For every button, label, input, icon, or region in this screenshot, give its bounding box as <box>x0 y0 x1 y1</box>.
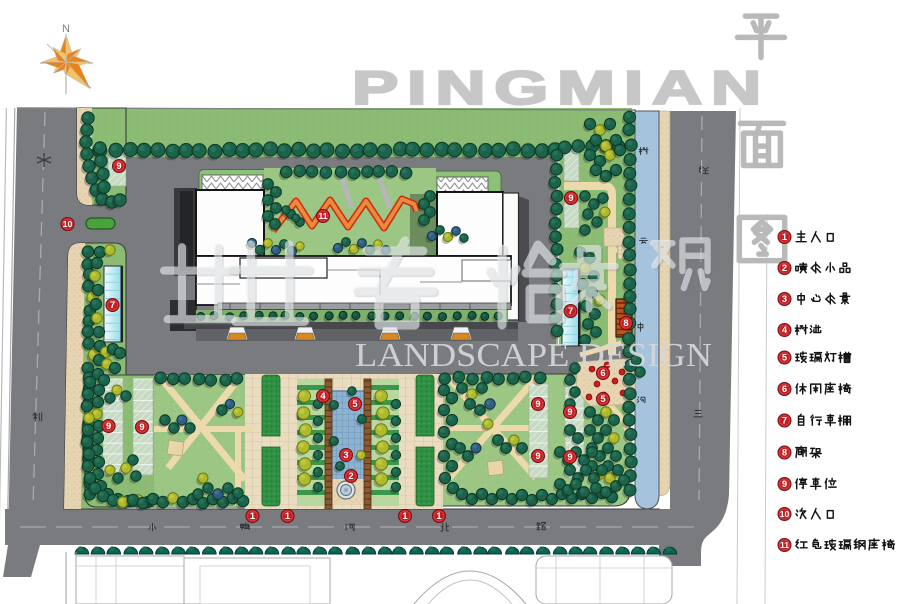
svg-text:9: 9 <box>567 451 572 462</box>
svg-text:11: 11 <box>780 540 789 550</box>
svg-text:7: 7 <box>568 305 573 316</box>
svg-text:2: 2 <box>348 470 353 481</box>
svg-text:5: 5 <box>600 393 605 404</box>
svg-text:9: 9 <box>568 192 573 203</box>
svg-text:4: 4 <box>782 324 788 335</box>
svg-text:LANDSCAPE DESIGN: LANDSCAPE DESIGN <box>355 337 712 374</box>
svg-text:7: 7 <box>110 299 115 310</box>
svg-text:9: 9 <box>535 450 540 461</box>
svg-text:9: 9 <box>535 398 540 409</box>
svg-text:10: 10 <box>780 509 790 519</box>
svg-text:1: 1 <box>782 231 787 242</box>
svg-text:1: 1 <box>436 510 441 521</box>
svg-text:9: 9 <box>106 420 111 431</box>
svg-text:9: 9 <box>567 406 572 417</box>
svg-text:5: 5 <box>782 352 787 363</box>
svg-text:N: N <box>62 23 70 35</box>
svg-text:9: 9 <box>116 160 121 171</box>
svg-text:1: 1 <box>250 510 255 521</box>
svg-text:3: 3 <box>782 293 787 304</box>
svg-text:10: 10 <box>63 219 73 229</box>
svg-text:11: 11 <box>318 211 327 221</box>
svg-text:6: 6 <box>782 383 787 394</box>
svg-text:2: 2 <box>782 262 787 273</box>
svg-text:1: 1 <box>285 510 290 521</box>
svg-text:9: 9 <box>139 421 144 432</box>
svg-text:PINGMIAN: PINGMIAN <box>352 61 770 114</box>
svg-text:4: 4 <box>320 390 326 401</box>
svg-text:8: 8 <box>623 317 628 328</box>
svg-text:3: 3 <box>343 449 348 460</box>
svg-text:1: 1 <box>402 510 407 521</box>
svg-text:8: 8 <box>782 447 787 458</box>
svg-text:5: 5 <box>352 398 357 409</box>
svg-text:6: 6 <box>600 367 605 378</box>
svg-text:9: 9 <box>782 478 787 489</box>
svg-text:7: 7 <box>782 415 787 426</box>
